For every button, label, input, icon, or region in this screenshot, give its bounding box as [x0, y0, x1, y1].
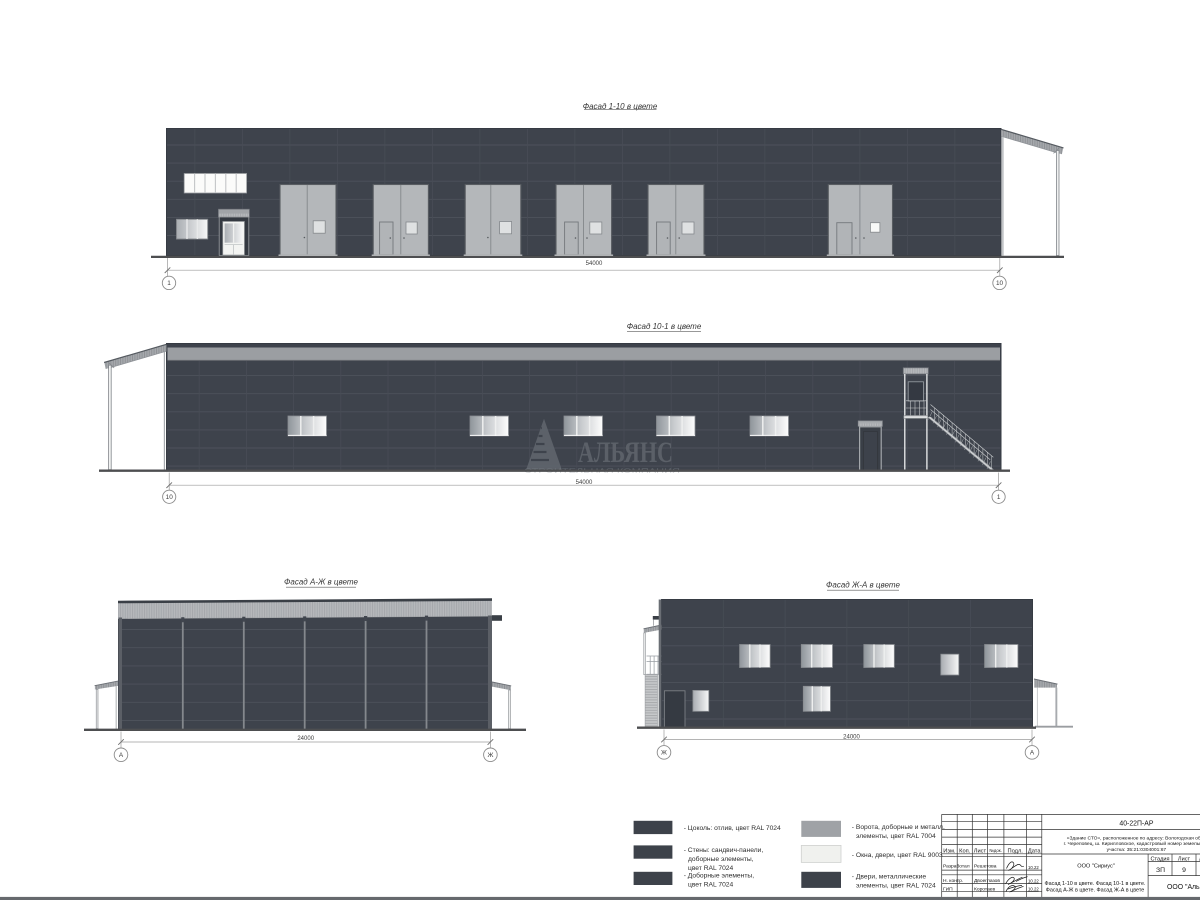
svg-text:- Стены: сандвич-панели,: - Стены: сандвич-панели,	[684, 847, 764, 854]
svg-text:- Ворота, доборные и металл.: - Ворота, доборные и металл.	[852, 823, 945, 831]
svg-text:10.22: 10.22	[1028, 865, 1039, 870]
svg-text:10: 10	[996, 280, 1004, 287]
svg-text:Стадия: Стадия	[1150, 856, 1169, 862]
svg-text:цвет RAL 7024: цвет RAL 7024	[688, 865, 734, 872]
svg-text:Изм.: Изм.	[943, 848, 956, 854]
svg-text:участка: 35:21:0304001:67: участка: 35:21:0304001:67	[1107, 847, 1167, 853]
svg-text:Двоеглазов: Двоеглазов	[974, 878, 1000, 884]
svg-text:Лист: Лист	[974, 848, 987, 854]
svg-text:Решетова: Решетова	[974, 864, 997, 870]
svg-text:Фасад 1-10 в цвете. Фасад 10-1: Фасад 1-10 в цвете. Фасад 10-1 в цвете.	[1045, 881, 1146, 887]
svg-text:24000: 24000	[843, 734, 860, 740]
svg-text:9: 9	[1182, 867, 1186, 874]
svg-text:ЗП: ЗП	[1156, 867, 1165, 874]
svg-text:А: А	[1030, 750, 1035, 757]
svg-text:- Двери, металлические: - Двери, металлические	[852, 873, 927, 880]
svg-text:Фасад 10-1 в цвете: Фасад 10-1 в цвете	[627, 322, 702, 331]
svg-text:Подл.: Подл.	[1008, 848, 1024, 854]
svg-text:«Здание СТО», расположенное по: «Здание СТО», расположенное по адресу: В…	[1067, 835, 1200, 841]
svg-text:1: 1	[997, 494, 1001, 501]
svg-text:г. Череповец, ш. Кирилловское,: г. Череповец, ш. Кирилловское, кадастров…	[1064, 840, 1200, 847]
svg-text:Разработал: Разработал	[943, 864, 970, 870]
svg-text:Ж: Ж	[661, 750, 667, 757]
svg-text:ГИП: ГИП	[943, 886, 953, 892]
svg-text:Н. контр.: Н. контр.	[943, 878, 963, 884]
svg-text:ООО "Сириус": ООО "Сириус"	[1077, 864, 1115, 870]
svg-text:10.22: 10.22	[1028, 878, 1039, 883]
svg-text:Лист: Лист	[1178, 856, 1191, 862]
svg-text:24000: 24000	[297, 736, 314, 742]
svg-text:Фасад А-Ж в цвете: Фасад А-Ж в цвете	[284, 578, 358, 587]
svg-text:Фасад Ж-А в цвете: Фасад Ж-А в цвете	[826, 581, 900, 590]
svg-text:54000: 54000	[586, 261, 603, 267]
svg-text:10.22: 10.22	[1028, 887, 1039, 892]
svg-text:ООО "Алья: ООО "Алья	[1167, 884, 1200, 891]
svg-text:элементы, цвет RAL 7004: элементы, цвет RAL 7004	[856, 833, 936, 840]
svg-text:- Доборные элементы,: - Доборные элементы,	[684, 872, 755, 880]
svg-text:- Цоколь: отлив, цвет RAL 7024: - Цоколь: отлив, цвет RAL 7024	[684, 825, 781, 832]
svg-text:АЛЬЯНС: АЛЬЯНС	[578, 436, 673, 469]
svg-text:Коп.: Коп.	[959, 848, 971, 854]
svg-text:цвет RAL 7024: цвет RAL 7024	[688, 882, 734, 889]
svg-text:доборные элементы,: доборные элементы,	[688, 855, 754, 863]
svg-text:10: 10	[166, 494, 174, 501]
svg-text:Ж: Ж	[487, 752, 493, 759]
svg-text:элементы, цвет RAL 7024: элементы, цвет RAL 7024	[856, 882, 936, 889]
svg-text:40-22П-АР: 40-22П-АР	[1119, 821, 1153, 828]
svg-text:Коротаев: Коротаев	[974, 886, 996, 892]
svg-text:Дата: Дата	[1028, 848, 1041, 854]
svg-text:№док.: №док.	[989, 848, 1002, 853]
svg-text:54000: 54000	[576, 480, 593, 486]
svg-text:Фасад А-Ж в цвете. Фасад Ж-А в: Фасад А-Ж в цвете. Фасад Ж-А в цвете	[1046, 888, 1145, 894]
svg-text:А: А	[119, 752, 124, 759]
svg-text:1: 1	[167, 280, 171, 287]
svg-text:- Окна, двери, цвет RAL 9003: - Окна, двери, цвет RAL 9003	[852, 852, 943, 859]
